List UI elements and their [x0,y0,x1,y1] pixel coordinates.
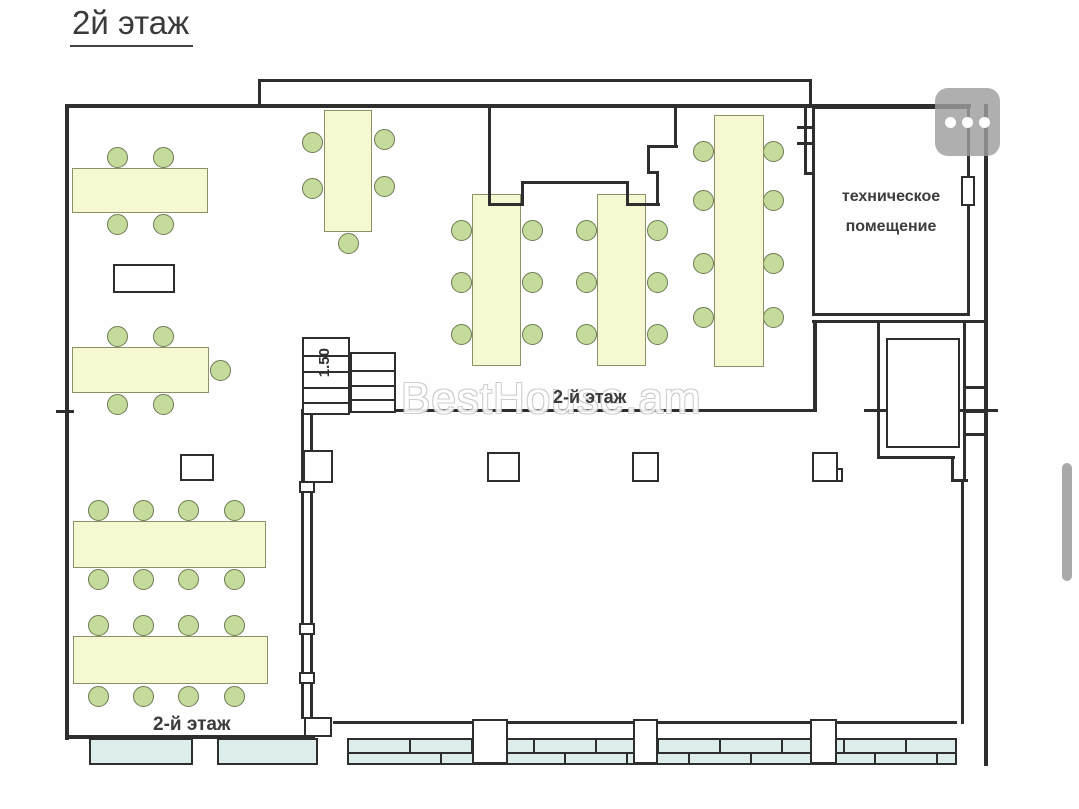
wall-segment [488,104,491,206]
chair [374,129,395,150]
column-box [299,481,315,493]
wall-segment [877,322,880,459]
chair [88,686,109,707]
chair [88,615,109,636]
table [73,636,268,684]
chair [133,615,154,636]
chair [451,324,472,345]
chair [576,220,597,241]
wall-segment [963,433,986,436]
table [472,194,521,366]
tech-room-label: техническое помещение [812,182,970,242]
chair [693,253,714,274]
stairs-flight [350,352,396,413]
chair [133,569,154,590]
column-box [303,450,333,483]
window [217,738,318,765]
ellipsis-menu-button[interactable] [935,88,1000,156]
chair [107,394,128,415]
column-box [299,672,315,684]
column-box [487,452,520,482]
chair [338,233,359,254]
wall-segment [65,104,971,108]
wall-segment [813,322,817,412]
scrollbar-thumb[interactable] [1062,463,1072,581]
table [73,521,266,568]
stair-tread [304,387,348,389]
wall-segment [626,203,660,206]
wall-segment [963,386,986,389]
chair [647,220,668,241]
chair [107,147,128,168]
table [72,168,208,213]
wall-segment [804,104,807,174]
chair [153,147,174,168]
ellipsis-icon [979,117,990,128]
stair-tread [352,385,394,387]
wall-segment [809,79,812,107]
chair [647,324,668,345]
pillar [633,719,658,764]
wall-segment [877,456,955,459]
window [89,738,193,765]
stairs-height-label: 1.50 [316,348,333,377]
chair [451,272,472,293]
chair [224,500,245,521]
wall-segment [797,126,815,129]
stair-tread [352,370,394,372]
chair [153,394,174,415]
floor-label-bottom: 2-й этаж [153,714,230,736]
wall-segment [674,104,677,148]
chair [178,500,199,521]
pillar [472,719,508,764]
wall-segment [797,142,815,145]
column-box [304,717,332,737]
chair [88,569,109,590]
chair [153,214,174,235]
chair [763,307,784,328]
chair [178,569,199,590]
wall-segment [65,104,69,740]
chair [763,141,784,162]
page: 2й этаж техническое помещение BestHouse.… [0,0,1079,809]
stair-tread [352,399,394,401]
wall-segment [812,320,986,323]
chair [763,190,784,211]
chair [107,214,128,235]
table [324,110,372,232]
chair [302,178,323,199]
column-box [180,454,214,481]
chair [153,326,174,347]
wall-segment [656,171,659,206]
chair [178,686,199,707]
tech-room-label-line1: техническое [812,182,970,212]
chair [693,190,714,211]
chair [576,272,597,293]
chair [133,500,154,521]
chair [763,253,784,274]
chair [210,360,231,381]
chair [224,569,245,590]
column-box [836,468,843,482]
wall-segment [521,181,524,206]
chair [178,615,199,636]
wall-segment [521,181,628,184]
column-box [113,264,175,293]
chair [522,324,543,345]
ellipsis-icon [962,117,973,128]
stair-tread [304,402,348,404]
chair [107,326,128,347]
chair [302,132,323,153]
wall-segment [961,481,964,724]
chair [133,686,154,707]
table [597,194,646,366]
wall-segment [963,322,966,482]
pillar [810,719,837,764]
chair [522,220,543,241]
column-box [812,452,838,482]
watermark: BestHouse.am [401,374,702,424]
chair [451,220,472,241]
wall-segment [647,145,650,174]
chair [224,615,245,636]
wall-segment [804,172,814,175]
wall-segment [258,79,812,82]
wall-segment [56,410,74,413]
floor-label-center: 2-й этаж [553,387,626,408]
page-title: 2й этаж [70,4,193,47]
chair [647,272,668,293]
wall-segment [963,410,986,413]
column-box [886,338,960,448]
chair [522,272,543,293]
ellipsis-icon [945,117,956,128]
wall-segment [488,203,523,206]
table [714,115,764,367]
column-box [299,623,315,635]
chair [693,141,714,162]
column-box [632,452,659,482]
chair [224,686,245,707]
chair [693,307,714,328]
chair [374,176,395,197]
floor-plan: техническое помещение BestHouse.am 2-й э… [0,0,1079,809]
chair [576,324,597,345]
chair [88,500,109,521]
wall-segment [258,79,261,107]
tech-room-label-line2: помещение [812,212,970,242]
table [72,347,209,393]
